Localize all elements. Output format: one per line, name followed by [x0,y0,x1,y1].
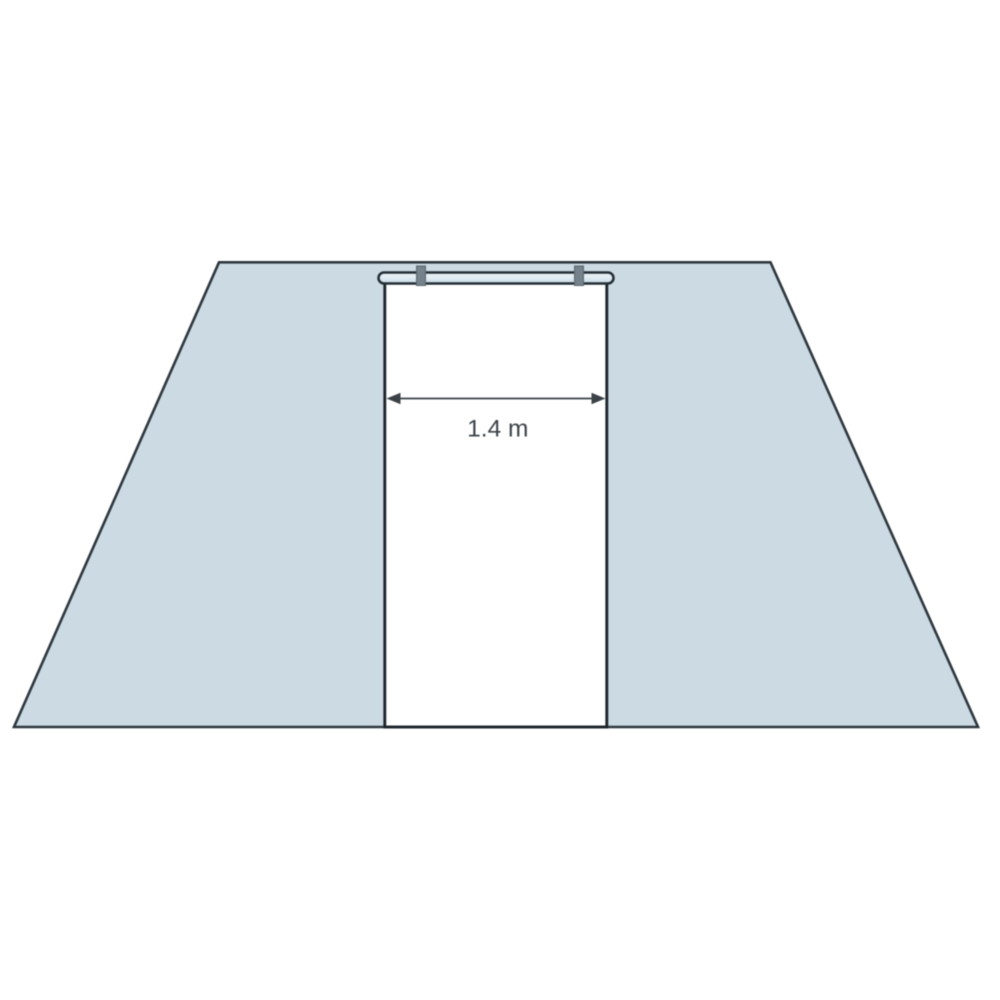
svg-text:1.4 m: 1.4 m [467,416,528,443]
